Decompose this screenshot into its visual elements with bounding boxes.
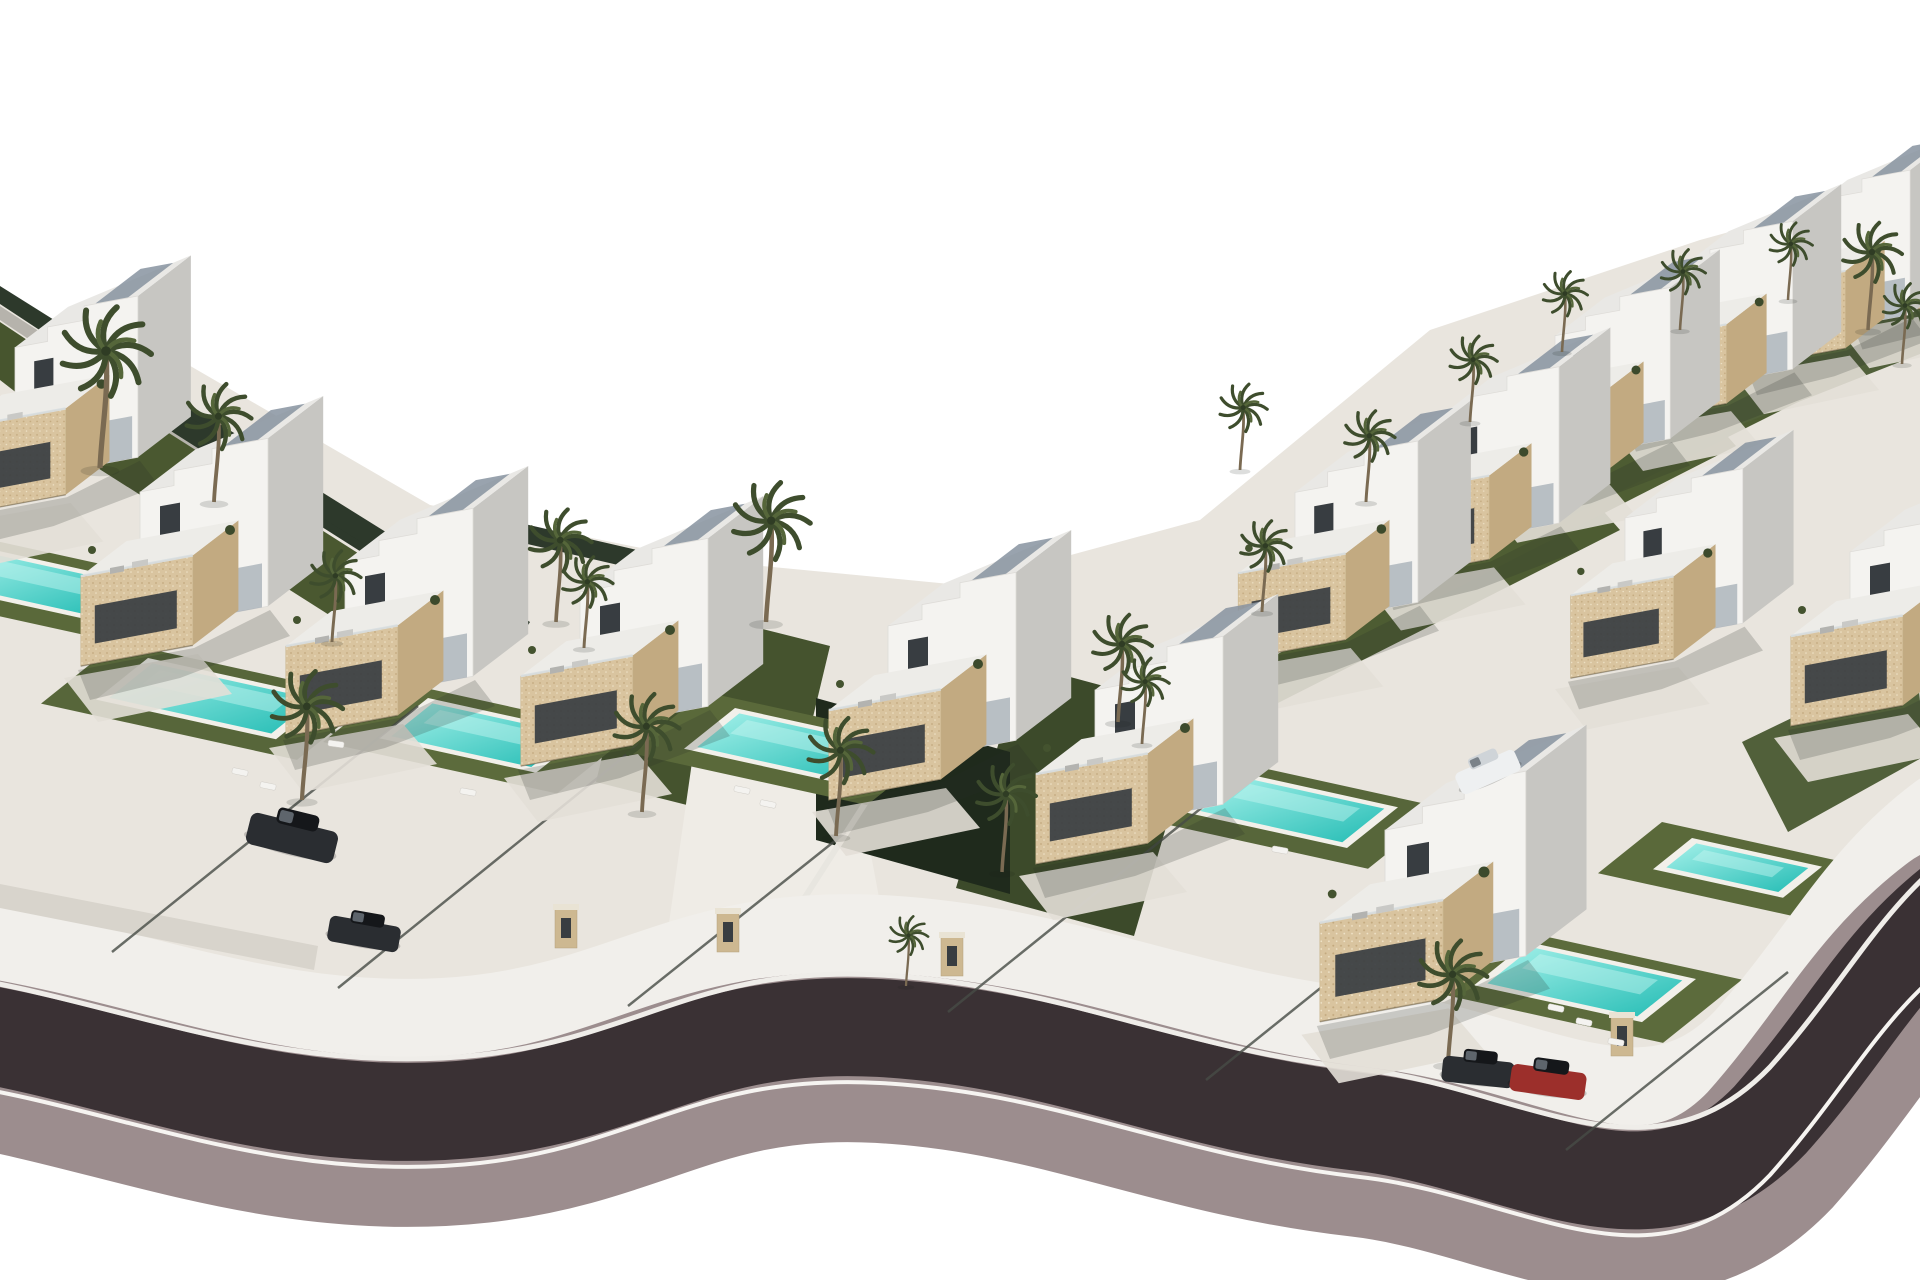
- roof-plant: [836, 680, 844, 688]
- palm-tree: [1220, 383, 1268, 474]
- roof-plant: [1577, 568, 1584, 575]
- roof-plant: [293, 616, 301, 624]
- roof-plant: [1479, 867, 1490, 878]
- roof-plant: [1703, 548, 1712, 557]
- roof-plant: [1755, 298, 1764, 307]
- roof-plant: [1377, 524, 1387, 534]
- roof-plant: [1328, 890, 1337, 899]
- roof-plant: [973, 659, 983, 669]
- villa-development-aerial-render: [0, 0, 1920, 1280]
- roof-plant: [430, 595, 440, 605]
- roof-plant: [665, 625, 675, 635]
- roof-plant: [88, 546, 96, 554]
- roof-plant: [1180, 723, 1190, 733]
- gate-post: [553, 904, 579, 948]
- gate-post: [715, 908, 741, 952]
- roof-plant: [1043, 744, 1051, 752]
- gate-post: [1609, 1012, 1635, 1056]
- roof-plant: [1798, 606, 1806, 614]
- roof-plant: [1632, 366, 1641, 375]
- roof-plant: [528, 646, 536, 654]
- render-viewport: [0, 0, 1920, 1280]
- roof-plant: [225, 525, 235, 535]
- gate-post: [939, 932, 965, 976]
- roof-plant: [1519, 447, 1528, 456]
